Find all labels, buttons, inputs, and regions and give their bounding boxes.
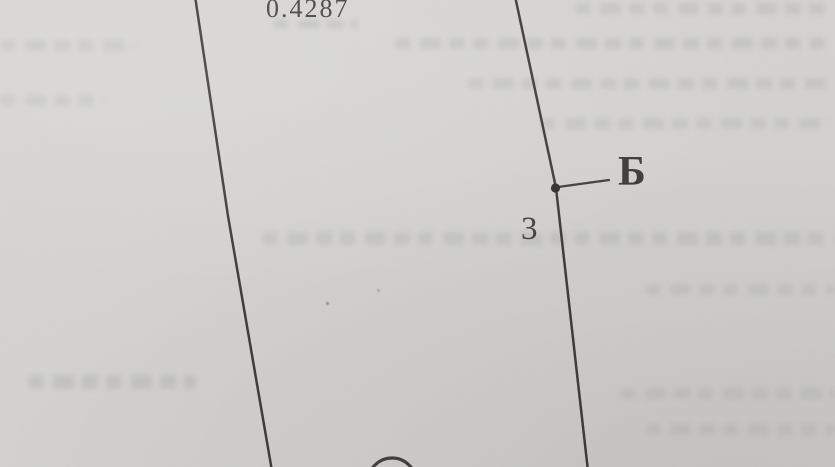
structure-circle (368, 458, 416, 467)
area-value-label: 0.4287 (266, 0, 350, 22)
boundary-line-left (195, 0, 272, 467)
parcel-plan-drawing (0, 0, 835, 467)
point-leader-line (558, 180, 609, 187)
segment-number-label: 3 (521, 213, 538, 246)
scanned-plan-page: 0.4287 Б 3 (0, 0, 835, 467)
point-b-label: Б (618, 151, 646, 193)
survey-point-dot (551, 183, 560, 192)
